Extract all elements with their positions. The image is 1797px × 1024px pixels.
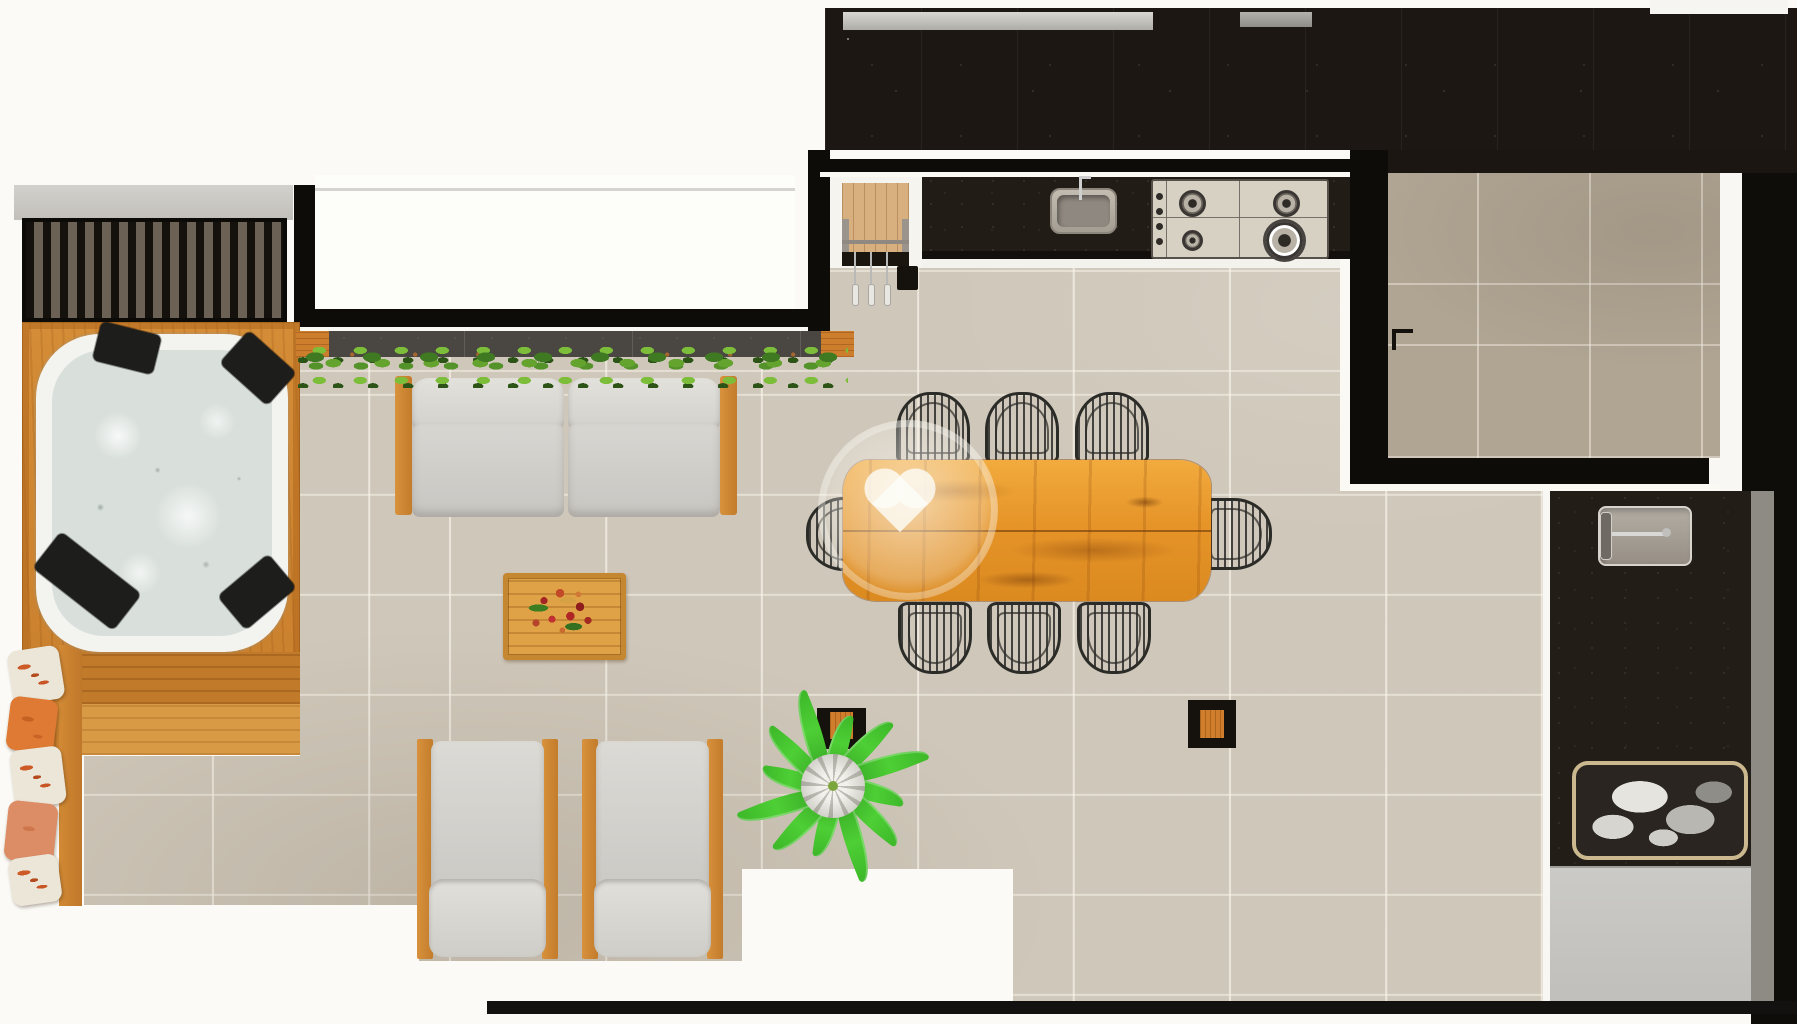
lounge-pillow-floral — [9, 745, 68, 809]
armchair-front-cushion — [429, 879, 546, 957]
live-edge-dining-table — [843, 460, 1211, 601]
wall-void-left — [294, 185, 315, 309]
hanging-utensil — [868, 252, 875, 306]
prep-sink — [1598, 506, 1692, 566]
armchair-cushion — [596, 741, 709, 893]
door-handle-icon — [1392, 329, 1413, 350]
sofa-seat-cushions — [412, 424, 720, 517]
lounge-pillow-floral — [7, 853, 63, 907]
dining-chair-bottom-3 — [1077, 602, 1151, 674]
deck-bench-upper — [82, 652, 300, 704]
wall-void-bottom — [294, 309, 830, 327]
wall-room-bottom — [1350, 458, 1709, 484]
cooktop-knob — [1156, 193, 1163, 200]
sink-basin — [1057, 195, 1110, 227]
armchair-right — [582, 739, 723, 959]
boxwood-hedge — [298, 342, 848, 388]
counter-base-outline — [922, 259, 1353, 268]
wall-kitchen-outline — [820, 172, 1364, 177]
square-planter-right — [1188, 700, 1236, 748]
right-edge-wall-outline — [1720, 173, 1742, 491]
kitchen-faucet-spout — [1079, 176, 1091, 179]
utensil-hanging-bar — [842, 240, 909, 244]
wall-room-left — [1350, 150, 1388, 458]
right-edge-gray-strip — [1751, 491, 1774, 1002]
cooktop-knob — [1156, 238, 1163, 245]
roof-dark-mass-extension — [1360, 150, 1797, 173]
roof-white-notch — [1650, 0, 1788, 14]
prep-sink-faucet-tip — [1662, 528, 1671, 537]
waste-bin — [897, 266, 918, 290]
right-edge-wall-upper — [1742, 173, 1797, 491]
burner-small — [1182, 230, 1203, 251]
dining-chair-top-1 — [896, 392, 970, 464]
dining-chair-bottom-2 — [987, 602, 1061, 674]
burner-large — [1266, 222, 1303, 259]
armchair-cushion — [431, 741, 544, 893]
rooflight-gray-bar-small — [1240, 12, 1312, 27]
plant-rosette-center — [801, 754, 865, 818]
outdoor-sofa — [395, 376, 737, 519]
wall-kitchen-top — [808, 159, 1376, 172]
stairwell-void — [315, 175, 795, 309]
hanging-utensil — [852, 252, 859, 306]
louvered-slat-screen — [22, 218, 287, 322]
gas-cooktop — [1151, 179, 1329, 259]
towel-basket — [1572, 761, 1748, 860]
planter-wood-top — [1200, 710, 1224, 738]
service-room-floor — [1388, 173, 1720, 458]
flower-bouquet — [524, 582, 604, 644]
burner — [1273, 190, 1300, 217]
armchair-front-cushion — [594, 879, 711, 957]
sofa-arm-left — [395, 376, 412, 515]
kitchen-wood-cabinet — [842, 183, 909, 259]
gray-mat — [1550, 866, 1751, 1004]
hanging-utensil — [884, 252, 891, 306]
dining-chair-bottom-1 — [898, 602, 972, 674]
wall-room-outline-bottom — [1350, 484, 1720, 491]
floor-plan-stage — [0, 0, 1797, 1024]
void-top-edge — [315, 188, 795, 191]
glass-railing-band — [14, 185, 293, 220]
cooktop-knob — [1156, 223, 1163, 230]
dining-chair-top-3 — [1075, 392, 1149, 464]
cooktop-knob — [1156, 208, 1163, 215]
armchair-left — [417, 739, 558, 959]
right-edge-wall-lower — [1774, 491, 1797, 1002]
kitchen-faucet — [1079, 176, 1082, 200]
rooflight-gray-bar — [843, 12, 1153, 30]
prep-sink-handle — [1600, 512, 1612, 560]
dining-chair-top-2 — [985, 392, 1059, 464]
wall-kitchen-left — [808, 150, 830, 333]
prep-sink-faucet-arm — [1612, 532, 1668, 536]
deck-bench-lower — [82, 704, 300, 755]
sofa-arm-right — [720, 376, 737, 515]
burner — [1179, 190, 1206, 217]
kitchen-sink — [1050, 188, 1117, 234]
parapet-edge-line — [487, 1001, 1797, 1014]
outdoor-counter-outline — [1543, 485, 1550, 1004]
